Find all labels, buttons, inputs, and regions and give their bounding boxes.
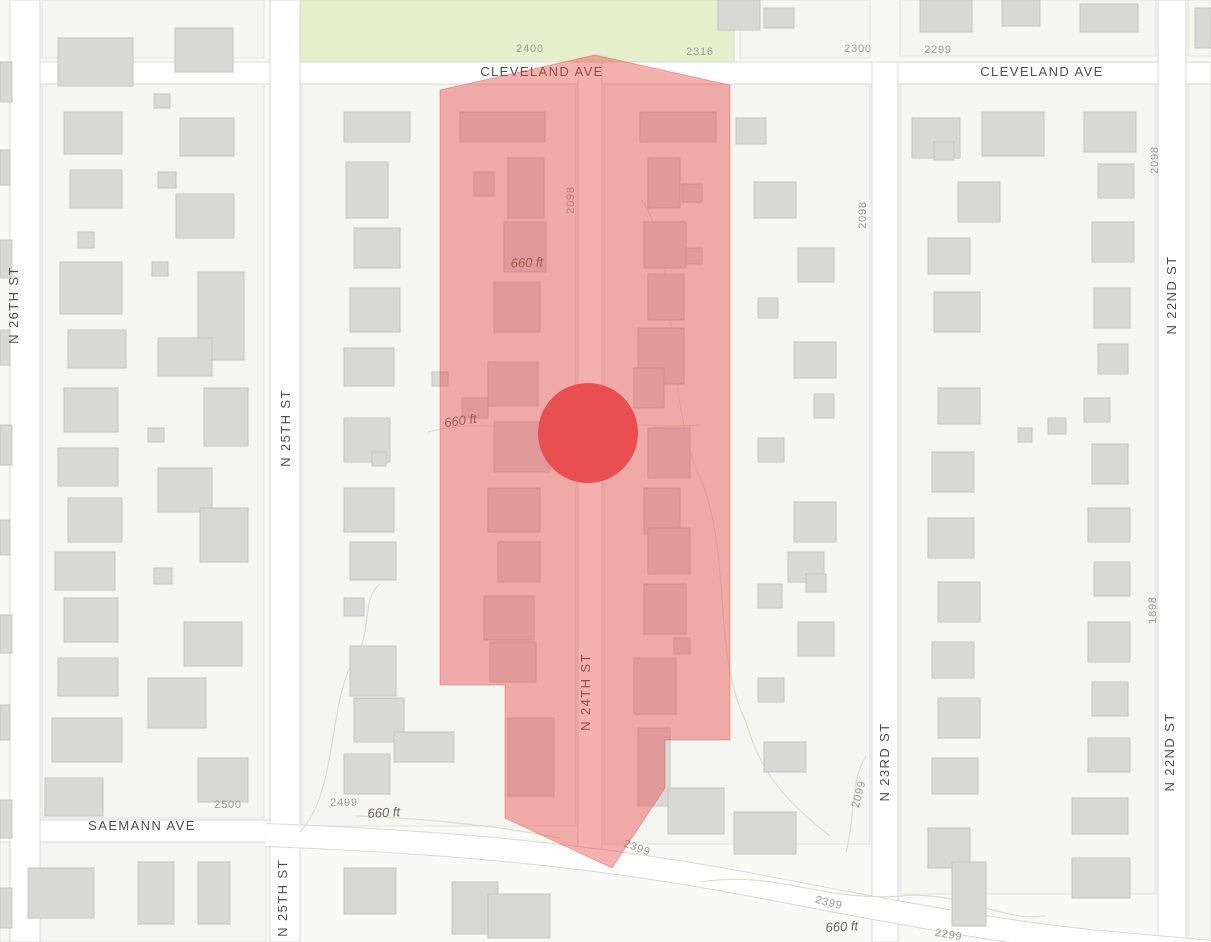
building-footprint — [958, 182, 1000, 222]
building-footprint — [928, 518, 974, 558]
building-footprint — [1092, 682, 1128, 716]
block-number-2098-mid: 2098 — [857, 201, 869, 229]
building-footprint — [350, 288, 400, 332]
building-footprint — [372, 452, 386, 466]
park-area-layer — [294, 0, 734, 62]
building-footprint — [758, 584, 782, 608]
building-footprint — [758, 678, 784, 702]
building-footprint — [1094, 288, 1130, 328]
building-footprint — [938, 388, 980, 424]
building-footprint — [0, 62, 12, 102]
contour-label-660ft-c: 660 ft — [367, 804, 402, 821]
block-number-2400: 2400 — [516, 43, 544, 55]
building-footprint — [764, 8, 794, 28]
building-footprint — [0, 800, 12, 838]
building-footprint — [982, 112, 1044, 156]
building-footprint — [798, 248, 834, 282]
street-label-cleveland-ave-east: CLEVELAND AVE — [980, 64, 1103, 79]
street-label-saemann-ave: SAEMANN AVE — [88, 818, 196, 833]
building-footprint — [350, 542, 396, 580]
block-number-2316: 2316 — [686, 46, 714, 58]
street-label-n-25th-st-upper: N 25TH ST — [278, 389, 293, 467]
block-number-2098-right: 2098 — [1149, 146, 1161, 174]
building-footprint — [68, 498, 122, 542]
street-label-n-23rd-st: N 23RD ST — [877, 722, 892, 801]
building-footprint — [138, 862, 174, 924]
building-footprint — [1094, 562, 1130, 596]
building-footprint — [58, 448, 118, 486]
building-footprint — [52, 718, 122, 762]
building-footprint — [354, 228, 400, 268]
building-footprint — [184, 622, 242, 666]
building-footprint — [148, 678, 206, 728]
building-footprint — [0, 615, 12, 653]
building-footprint — [176, 194, 234, 238]
street-n-23rd-st — [872, 62, 898, 942]
building-footprint — [64, 598, 118, 642]
building-footprint — [764, 742, 806, 772]
building-footprint — [920, 0, 972, 32]
building-footprint — [718, 0, 760, 30]
building-footprint — [794, 502, 836, 542]
building-footprint — [45, 778, 103, 816]
building-footprint — [28, 868, 94, 918]
building-footprint — [60, 262, 122, 314]
building-footprint — [1088, 508, 1130, 542]
block-number-2299-top: 2299 — [924, 44, 952, 56]
building-footprint — [952, 862, 986, 926]
building-footprint — [70, 170, 122, 208]
building-footprint — [1088, 622, 1130, 662]
building-footprint — [64, 112, 122, 154]
contour-label-660ft-d: 660 ft — [825, 918, 860, 935]
building-footprint — [204, 388, 248, 446]
building-footprint — [734, 812, 796, 854]
building-footprint — [798, 622, 834, 656]
street-n-26th-st — [10, 0, 40, 942]
building-footprint — [344, 598, 364, 616]
building-footprint — [1195, 8, 1211, 48]
building-footprint — [394, 732, 454, 762]
building-footprint — [158, 468, 212, 512]
building-footprint — [928, 238, 970, 274]
building-footprint — [64, 388, 118, 432]
building-footprint — [934, 292, 980, 332]
building-footprint — [78, 232, 94, 248]
park-area — [294, 0, 734, 62]
building-footprint — [154, 568, 172, 584]
building-footprint — [758, 298, 778, 318]
parcel-map[interactable]: 24002316CLEVELAND AVE23002299CLEVELAND A… — [0, 0, 1211, 942]
building-footprint — [148, 428, 164, 442]
building-footprint — [1048, 418, 1066, 434]
city-block — [1188, 84, 1211, 942]
building-footprint — [346, 162, 388, 218]
building-footprint — [1072, 798, 1128, 834]
building-footprint — [1092, 444, 1128, 484]
building-footprint — [754, 182, 796, 218]
street-label-n-22nd-st-lower: N 22ND ST — [1162, 712, 1177, 791]
building-footprint — [58, 658, 118, 696]
building-footprint — [58, 38, 133, 86]
building-footprint — [0, 520, 10, 555]
building-footprint — [1098, 164, 1134, 198]
building-footprint — [344, 868, 396, 914]
building-footprint — [668, 788, 724, 834]
building-footprint — [1084, 112, 1136, 152]
building-footprint — [158, 172, 176, 188]
building-footprint — [180, 118, 234, 156]
street-label-n-22nd-st-upper: N 22ND ST — [1164, 255, 1179, 334]
building-footprint — [175, 28, 233, 72]
building-footprint — [344, 348, 394, 386]
building-footprint — [932, 452, 974, 492]
building-footprint — [0, 888, 12, 928]
building-footprint — [344, 488, 394, 532]
building-footprint — [344, 112, 410, 142]
building-footprint — [488, 894, 550, 938]
building-footprint — [932, 642, 974, 678]
block-number-2300: 2300 — [844, 43, 872, 55]
building-footprint — [198, 758, 248, 802]
building-footprint — [1018, 428, 1032, 442]
building-footprint — [198, 862, 230, 924]
building-footprint — [1072, 858, 1130, 898]
building-footprint — [158, 338, 212, 376]
building-footprint — [1088, 738, 1130, 772]
building-footprint — [932, 758, 978, 794]
street-n-22nd-st — [1158, 0, 1186, 942]
building-footprint — [1098, 344, 1128, 374]
location-marker[interactable] — [538, 383, 638, 483]
street-n-25th-st — [270, 0, 300, 942]
building-footprint — [154, 94, 170, 108]
building-footprint — [758, 438, 784, 462]
building-footprint — [0, 150, 10, 185]
building-footprint — [794, 342, 836, 378]
building-footprint — [152, 262, 168, 276]
building-footprint — [55, 552, 115, 590]
street-label-n-26th-st: N 26TH ST — [6, 266, 21, 344]
building-footprint — [0, 705, 10, 740]
building-footprint — [1080, 4, 1138, 32]
building-footprint — [1092, 222, 1134, 262]
block-number-1898: 1898 — [1147, 596, 1159, 624]
building-footprint — [1084, 398, 1110, 422]
building-footprint — [1002, 0, 1040, 26]
building-footprint — [344, 754, 390, 794]
building-footprint — [350, 646, 396, 696]
building-footprint — [938, 698, 980, 738]
map-viewport[interactable]: 24002316CLEVELAND AVE23002299CLEVELAND A… — [0, 0, 1211, 942]
street-label-n-25th-st-lower: N 25TH ST — [275, 859, 290, 937]
building-footprint — [0, 425, 12, 465]
building-footprint — [200, 508, 248, 562]
building-footprint — [934, 142, 954, 160]
building-footprint — [68, 330, 126, 368]
block-number-2500: 2500 — [214, 799, 242, 811]
building-footprint — [814, 394, 834, 418]
building-footprint — [736, 118, 766, 144]
block-number-2499: 2499 — [330, 797, 358, 809]
building-footprint — [806, 574, 826, 592]
building-footprint — [938, 582, 980, 622]
